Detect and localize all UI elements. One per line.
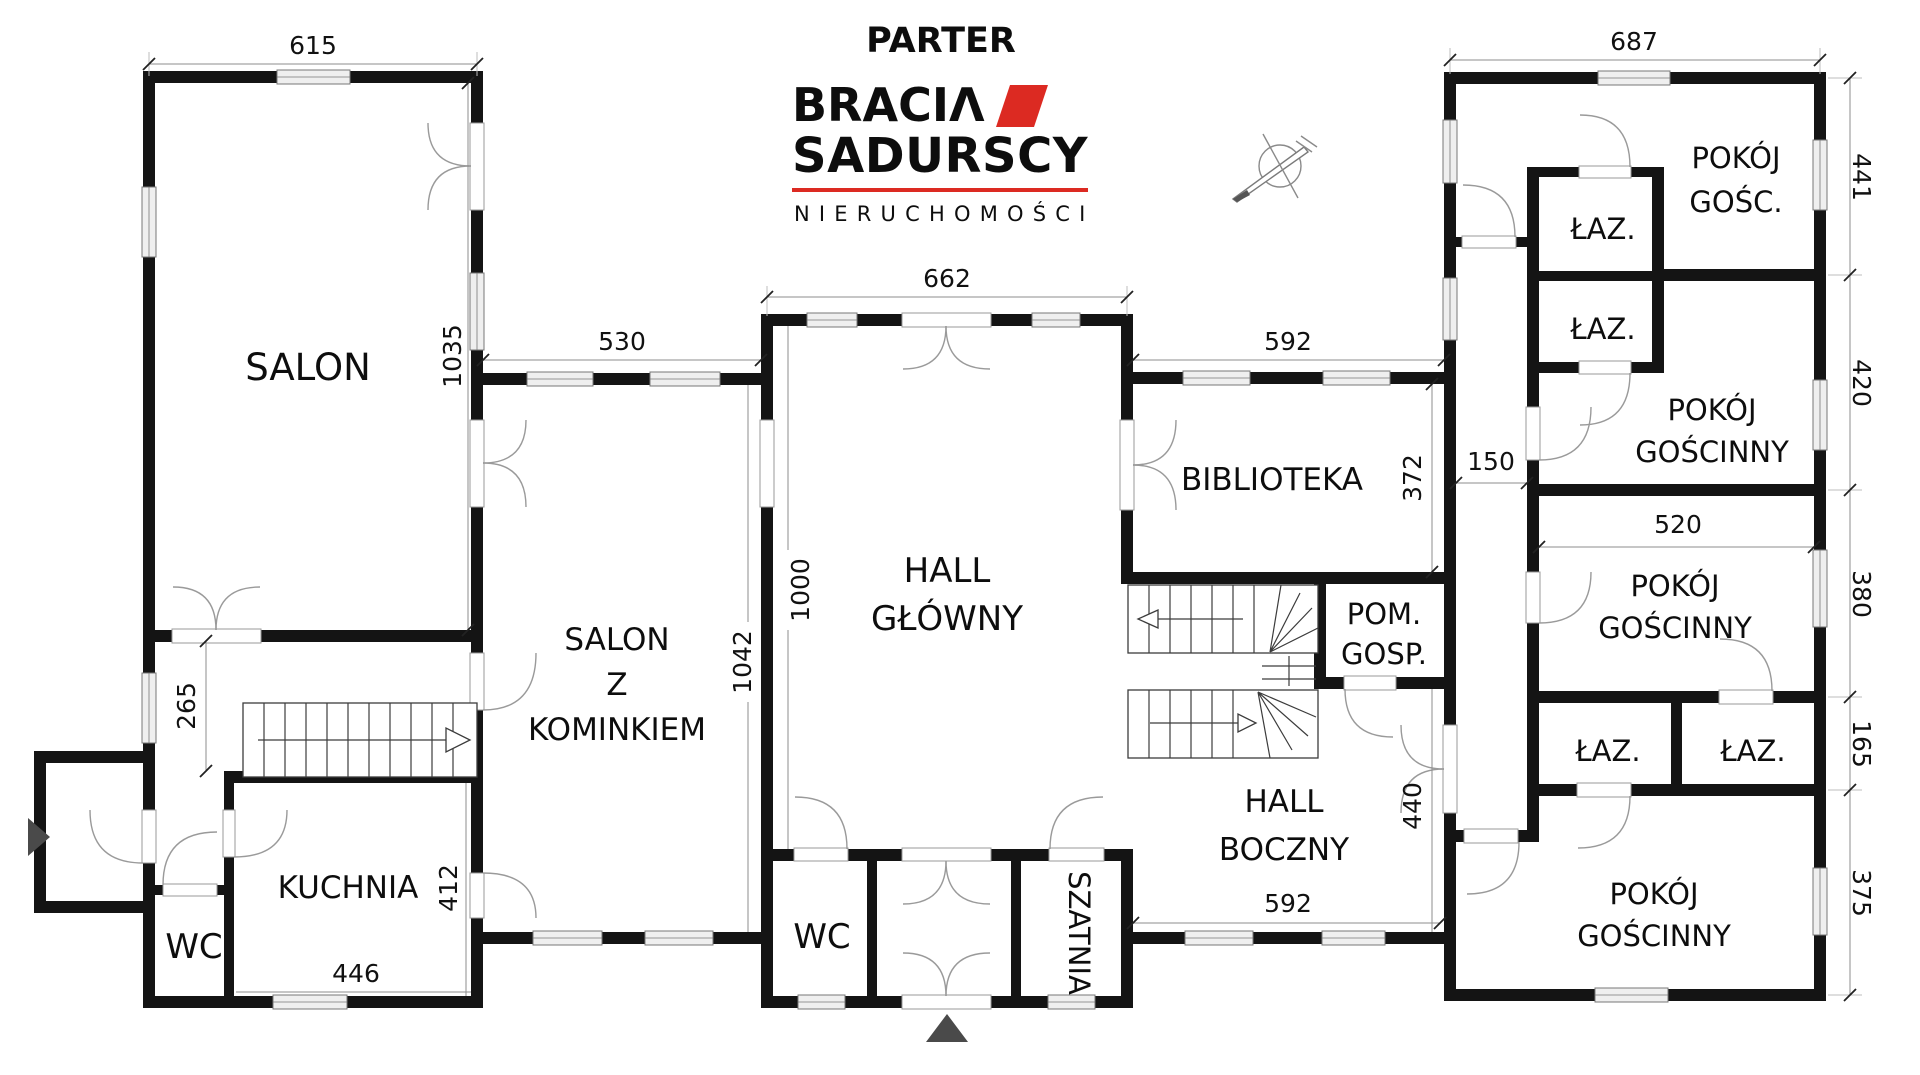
door-opening	[470, 420, 484, 507]
door-opening	[1049, 848, 1104, 861]
dim-662: 662	[923, 264, 971, 293]
window	[1813, 140, 1827, 210]
window	[1598, 71, 1670, 85]
window	[1032, 313, 1080, 327]
wall-segment	[867, 855, 877, 1002]
brand-line1: BRACIΛ	[792, 78, 985, 132]
window	[533, 931, 602, 945]
wall-segment	[471, 373, 773, 385]
dim-440: 440	[1398, 782, 1427, 830]
page-title: PARTER	[866, 21, 1016, 61]
room-label-biblioteka: BIBLIOTEKA	[1181, 462, 1363, 498]
room-label-hall-boczny: HALL	[1244, 784, 1324, 820]
dim-441: 441	[1847, 153, 1876, 201]
door-arc	[163, 832, 217, 885]
door-opening	[1344, 676, 1396, 690]
brand-red-mark-icon	[996, 85, 1048, 127]
door-opening	[1462, 236, 1516, 248]
window	[470, 273, 484, 350]
stairs-center	[1128, 585, 1318, 758]
door-arc	[795, 797, 847, 849]
floor-plan-canvas: PARTER BRACIΛ SADURSCY NIERUCHOMOŚCI	[0, 0, 1920, 1075]
compass-icon	[1233, 134, 1317, 202]
room-label-pom-gosp: POM.	[1347, 597, 1422, 631]
door-arc	[1539, 407, 1591, 460]
door-arc	[1578, 796, 1630, 848]
door-arc	[1050, 797, 1103, 849]
door-opening	[1579, 166, 1631, 178]
window	[527, 372, 593, 386]
door-arc	[90, 810, 143, 863]
dim-446: 446	[332, 959, 380, 988]
dim-530: 530	[598, 327, 646, 356]
dim-592-bottom: 592	[1264, 889, 1312, 918]
dim-380: 380	[1847, 570, 1876, 618]
window	[650, 372, 720, 386]
door-arc	[903, 953, 946, 996]
door-arc	[946, 953, 990, 996]
dim-150: 150	[1467, 447, 1515, 476]
room-label-hall-glowny: HALL	[904, 551, 991, 591]
door-arc	[1720, 639, 1772, 691]
window	[1183, 371, 1250, 385]
room-label-pokoj-goscinny-375: GOŚCINNY	[1577, 919, 1731, 953]
wall-segment	[1527, 484, 1826, 496]
room-label-hall-glowny: GŁÓWNY	[871, 598, 1023, 639]
dim-420: 420	[1847, 359, 1876, 407]
room-label-pokoj-goscinny-420: POKÓJ	[1667, 393, 1756, 427]
door-opening	[1577, 783, 1631, 797]
door-arc	[1580, 115, 1630, 167]
door-arc	[216, 587, 260, 630]
door-opening	[902, 313, 991, 327]
room-label-pokoj-goscinny-380: GOŚCINNY	[1598, 611, 1752, 645]
room-label-laz-2: ŁAZ.	[1569, 312, 1635, 346]
door-opening	[1526, 407, 1540, 460]
wall-segment	[471, 932, 773, 944]
room-label-szatnia: SZATNIA	[1062, 871, 1096, 995]
window	[1595, 988, 1668, 1002]
door-opening	[223, 810, 235, 857]
door-opening	[172, 629, 261, 643]
door-opening	[1443, 725, 1457, 813]
door-arc	[903, 326, 946, 369]
brand-tagline: NIERUCHOMOŚCI	[794, 201, 1095, 226]
wall-segment	[761, 314, 773, 1008]
floor-plan-page: PARTER BRACIΛ SADURSCY NIERUCHOMOŚCI	[0, 0, 1920, 1075]
room-label-pokoj-goscinny-375: POKÓJ	[1609, 877, 1698, 911]
door-opening	[1526, 572, 1540, 623]
door-arc	[1580, 373, 1630, 425]
wall-segment	[471, 71, 483, 1007]
dim-592-top: 592	[1264, 327, 1312, 356]
wall-segment	[1814, 72, 1826, 1001]
door-opening	[902, 995, 991, 1009]
door-opening	[902, 848, 991, 861]
room-label-laz-4: ŁAZ.	[1719, 734, 1785, 768]
dim-375: 375	[1847, 869, 1876, 917]
window	[1323, 371, 1390, 385]
door-arc	[483, 653, 536, 710]
door-arc	[1133, 420, 1176, 465]
door-opening	[794, 848, 848, 861]
door-arc	[234, 810, 287, 857]
wall-segment	[1671, 691, 1682, 796]
dim-687: 687	[1610, 27, 1658, 56]
wall-segment	[34, 751, 147, 763]
door-opening	[1579, 361, 1631, 374]
room-label-pokoj-goscinny-380: POKÓJ	[1630, 569, 1719, 603]
wall-segment	[1011, 855, 1021, 1002]
door-opening	[142, 810, 156, 863]
wall-segment	[1652, 167, 1664, 283]
dim-1042: 1042	[728, 630, 757, 694]
dim-372: 372	[1398, 454, 1427, 502]
window	[277, 70, 350, 84]
window	[1185, 931, 1253, 945]
door-arc	[1463, 185, 1515, 237]
door-opening	[760, 420, 774, 507]
wall-segment	[1652, 269, 1826, 281]
window	[142, 187, 156, 257]
door-arc	[946, 326, 990, 369]
door-arc	[1345, 689, 1393, 737]
window	[1322, 931, 1385, 945]
wall-segment	[1527, 784, 1826, 796]
brand-line2: SADURSCY	[792, 128, 1089, 184]
room-label-salon: SALON	[245, 346, 371, 389]
dim-615: 615	[289, 31, 337, 60]
door-opening	[1464, 829, 1518, 843]
room-label-laz-3: ŁAZ.	[1574, 734, 1640, 768]
entrance-arrow-bottom-icon	[926, 1014, 968, 1042]
dim-265: 265	[172, 682, 201, 730]
window	[1813, 380, 1827, 450]
room-label-pokoj-goscinny-420: GOŚCINNY	[1635, 435, 1789, 469]
door-opening	[470, 873, 484, 918]
door-arc	[903, 861, 946, 904]
window	[645, 931, 713, 945]
door-arc	[483, 873, 536, 918]
dim-520: 520	[1654, 510, 1702, 539]
room-label-wc-left: WC	[165, 927, 222, 967]
room-label-laz-1: ŁAZ.	[1569, 212, 1635, 246]
window	[1048, 995, 1095, 1009]
door-arc	[428, 166, 471, 210]
door-arc	[483, 420, 526, 463]
window	[1813, 868, 1827, 935]
door-arc	[1539, 572, 1591, 623]
window	[142, 673, 156, 743]
brand-underline	[792, 188, 1088, 192]
window	[273, 995, 347, 1009]
dim-1035: 1035	[438, 324, 467, 388]
door-arc	[1133, 465, 1176, 510]
wall-segment	[1121, 932, 1452, 944]
wall-segment	[1121, 372, 1452, 384]
window	[807, 313, 857, 327]
stairs-left	[243, 703, 477, 777]
wall-segment	[34, 901, 147, 913]
door-arc	[173, 587, 216, 630]
room-label-hall-boczny: BOCZNY	[1219, 832, 1349, 868]
dim-1000: 1000	[786, 558, 815, 622]
window	[1443, 120, 1457, 183]
room-label-pokoj-gosc: GOŚC.	[1689, 185, 1782, 219]
door-arc	[946, 861, 990, 904]
room-label-salon-z-kominkiem: KOMINKIEM	[528, 712, 706, 748]
door-arc	[1467, 842, 1519, 894]
window	[1813, 550, 1827, 627]
door-opening	[1719, 690, 1773, 704]
door-arc	[428, 123, 471, 166]
dim-412: 412	[434, 864, 463, 912]
room-label-salon-z-kominkiem: Z	[606, 667, 627, 703]
room-labels-layer: SALON KUCHNIA WC SALON Z KOMINKIEM HALL …	[165, 141, 1789, 995]
brand-logo: BRACIΛ SADURSCY NIERUCHOMOŚCI	[792, 78, 1095, 226]
door-arc	[1401, 725, 1444, 769]
wall-segment	[1121, 572, 1452, 584]
door-opening	[1120, 420, 1134, 510]
room-label-wc-center: WC	[793, 917, 850, 957]
room-label-pom-gosp: GOSP.	[1341, 637, 1427, 671]
door-opening	[470, 653, 484, 710]
door-opening	[470, 123, 484, 210]
wall-segment	[1444, 72, 1456, 1001]
door-opening	[163, 884, 217, 896]
room-label-kuchnia: KUCHNIA	[278, 870, 419, 906]
window	[1443, 278, 1457, 340]
wall-segment	[1527, 167, 1539, 836]
dim-165: 165	[1847, 720, 1876, 768]
room-label-salon-z-kominkiem: SALON	[564, 622, 669, 658]
wall-segment	[1527, 271, 1664, 281]
door-arc	[483, 463, 526, 507]
room-label-pokoj-gosc: POKÓJ	[1691, 141, 1780, 175]
window	[798, 995, 845, 1009]
header: PARTER BRACIΛ SADURSCY NIERUCHOMOŚCI	[792, 21, 1317, 226]
wall-segment	[1652, 271, 1664, 373]
